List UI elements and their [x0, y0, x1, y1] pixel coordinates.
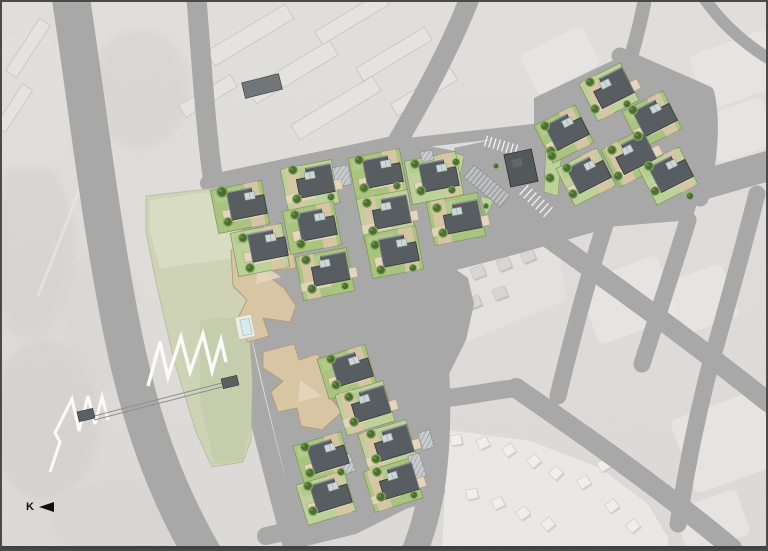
tree: [393, 182, 401, 190]
north-indicator: K: [26, 501, 54, 513]
tree: [483, 203, 489, 209]
tree: [540, 121, 550, 131]
tree: [650, 186, 660, 196]
tree: [300, 442, 310, 452]
tree: [371, 454, 381, 464]
tree: [607, 145, 617, 155]
site-plan-map: K: [0, 0, 768, 551]
tree: [331, 380, 341, 390]
tree: [308, 506, 318, 516]
tree: [303, 481, 313, 491]
tree: [438, 228, 448, 238]
tree: [416, 186, 426, 196]
tree: [562, 163, 572, 173]
tree: [290, 210, 300, 220]
tree: [341, 282, 349, 290]
tree: [568, 189, 578, 199]
tree: [301, 255, 311, 265]
tree: [245, 263, 255, 273]
tree: [288, 165, 298, 175]
tree: [432, 203, 442, 213]
tree: [633, 131, 643, 141]
tree: [376, 492, 386, 502]
tree: [372, 467, 382, 477]
tree: [452, 158, 460, 166]
tree: [307, 284, 317, 294]
tree: [292, 194, 302, 204]
tree: [354, 155, 364, 165]
tree: [628, 105, 638, 115]
tree: [547, 151, 557, 161]
tree: [585, 77, 595, 87]
tree: [410, 491, 418, 499]
tree: [366, 429, 376, 439]
tree: [409, 264, 417, 272]
tree: [376, 265, 386, 275]
tree: [305, 468, 315, 478]
tree: [344, 392, 354, 402]
tree: [216, 186, 228, 198]
tree: [359, 183, 369, 193]
tree: [362, 198, 372, 208]
tree: [410, 159, 420, 169]
tree: [590, 104, 600, 114]
north-label: K: [26, 501, 34, 513]
tree: [337, 468, 345, 476]
tree: [368, 226, 378, 236]
tree: [327, 193, 335, 201]
tree: [238, 233, 248, 243]
north-arrow-icon: [39, 502, 54, 512]
tree: [545, 173, 555, 183]
tree: [370, 240, 380, 250]
tree: [448, 186, 456, 194]
site-plan-canvas: [0, 0, 768, 551]
tree: [644, 161, 654, 171]
tree: [686, 192, 694, 200]
tree: [349, 417, 359, 427]
tree: [326, 354, 336, 364]
tree: [296, 239, 306, 249]
tree: [613, 171, 623, 181]
tree: [223, 217, 233, 227]
hatch-patio: [420, 150, 434, 162]
tree: [493, 163, 499, 169]
